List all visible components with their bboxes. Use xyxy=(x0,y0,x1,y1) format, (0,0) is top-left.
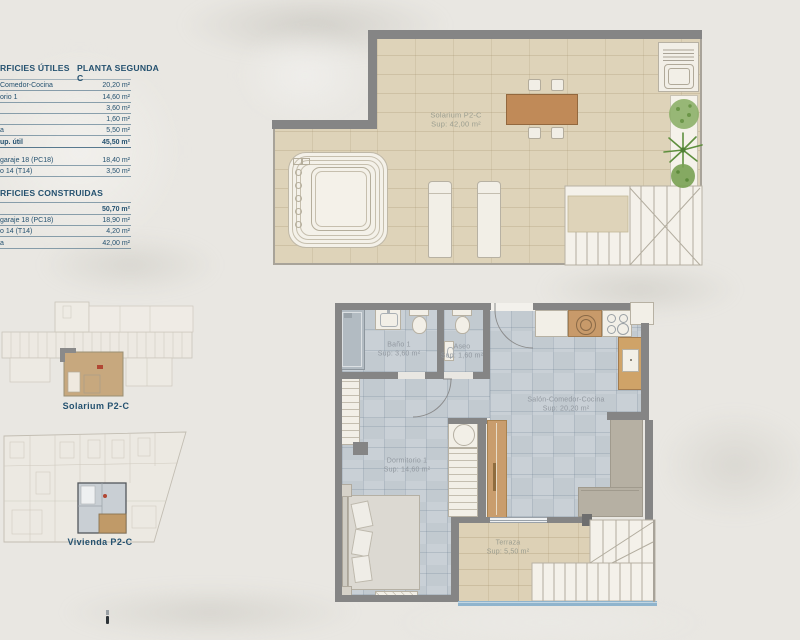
door-arc xyxy=(413,379,451,417)
room-name: Baño 1 xyxy=(387,342,410,349)
room-area: Sup: 1,60 m² xyxy=(441,352,483,359)
room-area: Sup: 14,60 m² xyxy=(384,466,431,473)
room-name: Salón-Comedor-Cocina xyxy=(527,397,604,404)
room-area: Sup: 3,60 m² xyxy=(378,350,420,357)
room-label-dormitorio: Dormitorio 1 Sup: 14,60 m² xyxy=(384,458,431,475)
room-label-terraza: Terraza Sup: 5,50 m² xyxy=(487,540,529,557)
room-label-salon: Salón-Comedor-Cocina Sup: 20,20 m² xyxy=(527,397,604,414)
floorplan-sheet: RFICIES ÚTILES PLANTA SEGUNDA C Comedor-… xyxy=(0,0,800,640)
room-label-banio: Baño 1 Sup: 3,60 m² xyxy=(378,342,420,359)
room-name: Dormitorio 1 xyxy=(387,458,428,465)
door-arc xyxy=(495,310,533,348)
room-name: Aseo xyxy=(454,344,471,351)
apartment-floorplan: Baño 1 Sup: 3,60 m² Aseo Sup: 1,60 m² Sa… xyxy=(0,0,800,640)
staircase xyxy=(532,520,655,601)
room-name: Terraza xyxy=(496,540,521,547)
room-label-aseo: Aseo Sup: 1,60 m² xyxy=(441,344,483,361)
ink-speck xyxy=(106,616,109,624)
room-area: Sup: 20,20 m² xyxy=(543,405,590,412)
terrace-edge xyxy=(653,520,655,602)
pool-edge-line xyxy=(458,601,657,606)
room-area: Sup: 5,50 m² xyxy=(487,548,529,555)
ink-speck xyxy=(106,610,109,615)
